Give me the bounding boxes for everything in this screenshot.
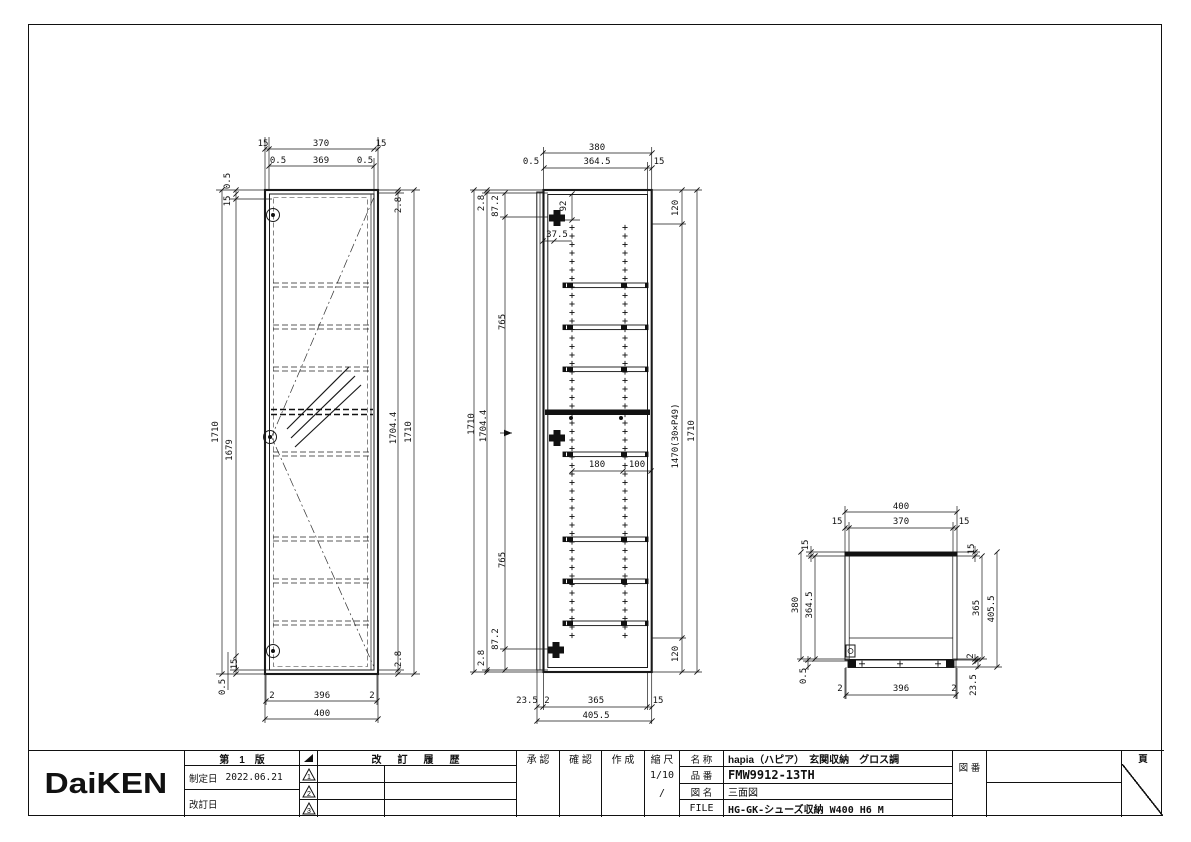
dimension-label: 15 <box>258 139 269 149</box>
history-title: 改 訂 履 歴 <box>318 751 516 766</box>
dimension-label: 23.5 <box>516 696 538 706</box>
company-logo: DaiKEN <box>45 767 168 800</box>
dimension-label: 765 <box>498 552 508 568</box>
part-number: FMW9912-13TH <box>724 767 952 783</box>
dimension-label: 396 <box>314 691 330 701</box>
established-date: 2022.06.21 <box>226 772 283 783</box>
checked-label: 確 認 <box>560 751 601 766</box>
logo-cell: DaiKEN <box>28 751 185 817</box>
file-value: HG-GK-シューズ収納 W400 H6 M <box>724 800 952 817</box>
history-row <box>318 766 516 783</box>
scale-value: 1/10 <box>645 766 679 784</box>
svg-text:2: 2 <box>307 791 311 798</box>
page-cell: 頁 <box>1122 751 1164 817</box>
dimension-label: 370 <box>313 139 329 149</box>
dimension-label: 0.5 <box>223 173 233 189</box>
figno-value-bottom <box>987 783 1121 817</box>
dimension-label: 15 <box>223 196 233 207</box>
dimension-label: 23.5 <box>969 674 979 696</box>
dimension-label: 2.8 <box>394 651 404 667</box>
dimension-label: 15 <box>653 696 664 706</box>
dimension-label: 400 <box>893 502 909 512</box>
dimension-labels: 15370150.53690.50.515171016792.81704.417… <box>211 139 997 721</box>
figno-label: 図 番 <box>953 751 986 783</box>
dimension-label: 0.5 <box>270 156 286 166</box>
dimension-label: 0.5 <box>218 679 228 695</box>
product-name: hapia（ハピア） 玄関収納 グロス調 <box>724 751 952 766</box>
name-table: 名 称 hapia（ハピア） 玄関収納 グロス調 品 番 FMW9912-13T… <box>680 751 953 817</box>
history-row <box>318 800 516 817</box>
scale-cell: 縮 尺 1/10 / <box>645 751 680 817</box>
dimension-label: 2 <box>369 691 374 701</box>
dimension-label: 2.8 <box>477 650 487 666</box>
drawing-canvas: 15370150.53690.50.515171016792.81704.417… <box>0 0 1191 842</box>
door-top <box>845 552 957 557</box>
revision-triangle-icon: 1 <box>300 766 317 783</box>
dimension-label: 380 <box>791 597 801 613</box>
established-row: 制定日 2022.06.21 <box>185 766 299 790</box>
revision-triangle-icon: 3 <box>300 800 317 817</box>
svg-text:3: 3 <box>307 808 311 815</box>
generated-details <box>219 146 999 723</box>
dimension-label: 2 <box>837 684 842 694</box>
edition-cell: 第 1 版 制定日 2022.06.21 改訂日 <box>185 751 300 817</box>
dimension-label: 2 <box>966 653 976 658</box>
door-swing-line <box>272 197 375 667</box>
fixed-shelf <box>545 410 650 421</box>
dimension-label: 92 <box>559 201 569 212</box>
dimension-label: 87.2 <box>491 195 501 217</box>
dimension-label: 1470(30×P49) <box>671 403 681 468</box>
dimension-label: 396 <box>893 684 909 694</box>
dimension-label: 2.8 <box>394 197 404 213</box>
dimension-label: 15 <box>959 517 970 527</box>
svg-text:1: 1 <box>307 774 311 781</box>
page-slash <box>1122 764 1163 816</box>
page-label: 頁 <box>1122 751 1164 764</box>
revision-triangle-icon: 2 <box>300 783 317 800</box>
dimension-label: 15 <box>376 139 387 149</box>
established-label: 制定日 <box>189 771 218 785</box>
dimension-label: 37.5 <box>546 230 568 240</box>
dimension-label: 1710 <box>687 420 697 442</box>
dimension-label: 15 <box>832 517 843 527</box>
approved-cell: 承 認 <box>517 751 560 817</box>
edition-label: 第 1 版 <box>185 751 299 766</box>
figname-label: 図 名 <box>680 784 724 799</box>
hinge-icon <box>548 210 565 658</box>
dimension-label: 400 <box>314 709 330 719</box>
figno-value-top <box>987 751 1121 783</box>
dimension-label: 765 <box>498 314 508 330</box>
dimension-label: 15 <box>654 157 665 167</box>
dimension-label: 1710 <box>211 421 221 443</box>
side-section-view <box>470 147 702 724</box>
figno-label-col: 図 番 <box>953 751 987 817</box>
drawing-sheet: 15370150.53690.50.515171016792.81704.417… <box>0 0 1191 842</box>
revision-mark-column: 1 2 3 <box>300 751 318 817</box>
dimension-label: 405.5 <box>987 595 997 622</box>
dimension-label: 365 <box>588 696 604 706</box>
dimension-label: 15 <box>967 544 977 555</box>
name-label: 名 称 <box>680 751 724 766</box>
dimension-label: 1704.4 <box>479 410 489 443</box>
dimension-label: 87.2 <box>491 628 501 650</box>
mirror-hatch <box>287 367 361 447</box>
dimension-label: 365 <box>972 600 982 616</box>
figname-row: 図 名 三面図 <box>680 784 952 800</box>
dimension-label: 1710 <box>404 421 414 443</box>
approved-label: 承 認 <box>517 751 559 766</box>
dimension-label: 2 <box>544 696 549 706</box>
dimension-label: 0.5 <box>799 668 809 684</box>
created-label: 作 成 <box>602 751 644 766</box>
figname-value: 三面図 <box>724 784 952 799</box>
center-arrow <box>504 430 512 436</box>
dimension-label: 0.5 <box>357 156 373 166</box>
dimension-label: 2.8 <box>477 195 487 211</box>
dimension-label: 15 <box>230 659 240 670</box>
revised-label: 改訂日 <box>189 797 218 811</box>
scale-label: 縮 尺 <box>645 751 679 766</box>
revision-history: 改 訂 履 歴 <box>318 751 517 817</box>
dimension-label: 180 <box>589 460 605 470</box>
hinge-icon <box>846 645 855 657</box>
scale-extra: / <box>645 784 679 802</box>
name-row: 名 称 hapia（ハピア） 玄関収納 グロス調 <box>680 751 952 767</box>
dimension-label: 370 <box>893 517 909 527</box>
dimension-label: 15 <box>801 540 811 551</box>
dimension-label: 1704.4 <box>389 412 399 445</box>
dimension-label: 1710 <box>467 413 477 435</box>
file-label: FILE <box>680 800 724 817</box>
file-row: FILE HG-GK-シューズ収納 W400 H6 M <box>680 800 952 817</box>
part-row: 品 番 FMW9912-13TH <box>680 767 952 784</box>
history-row <box>318 783 516 800</box>
dimension-label: 364.5 <box>805 591 815 618</box>
dimension-label: 1679 <box>225 439 235 461</box>
dimension-label: 2 <box>269 691 274 701</box>
revision-flag-icon <box>300 751 317 766</box>
dimension-label: 100 <box>629 460 645 470</box>
dimension-label: 0.5 <box>523 157 539 167</box>
dimension-label: 120 <box>671 200 681 216</box>
figno-area: 図 番 <box>953 751 1122 817</box>
dimension-label: 120 <box>671 646 681 662</box>
part-label: 品 番 <box>680 767 724 783</box>
title-block: DaiKEN 第 1 版 制定日 2022.06.21 改訂日 1 2 <box>28 750 1164 816</box>
dimension-label: 369 <box>313 156 329 166</box>
created-cell: 作 成 <box>602 751 645 817</box>
dimension-label: 380 <box>589 143 605 153</box>
dimension-label: 2 <box>951 684 956 694</box>
dimension-label: 405.5 <box>582 711 609 721</box>
dimension-label: 364.5 <box>583 157 610 167</box>
checked-cell: 確 認 <box>560 751 602 817</box>
revised-row: 改訂日 <box>185 790 299 817</box>
